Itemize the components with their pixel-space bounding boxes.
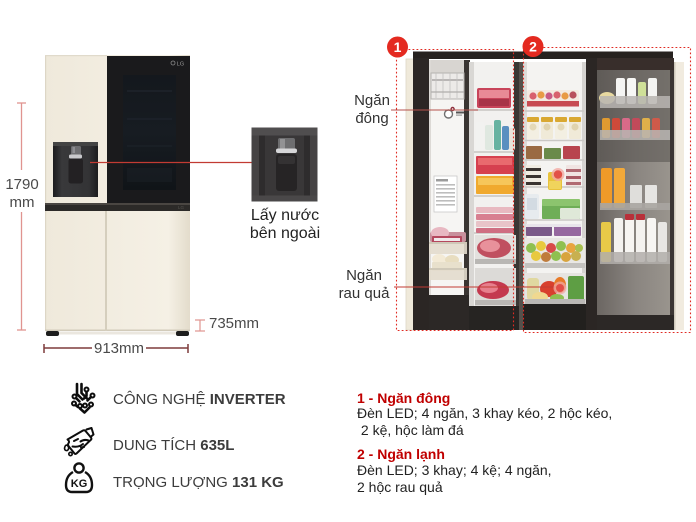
svg-text:2: 2 — [529, 39, 537, 55]
svg-text:1: 1 — [394, 39, 402, 55]
svg-text:LG: LG — [177, 61, 184, 67]
svg-text:KG: KG — [71, 478, 88, 490]
svg-text:LG: LG — [178, 205, 185, 210]
